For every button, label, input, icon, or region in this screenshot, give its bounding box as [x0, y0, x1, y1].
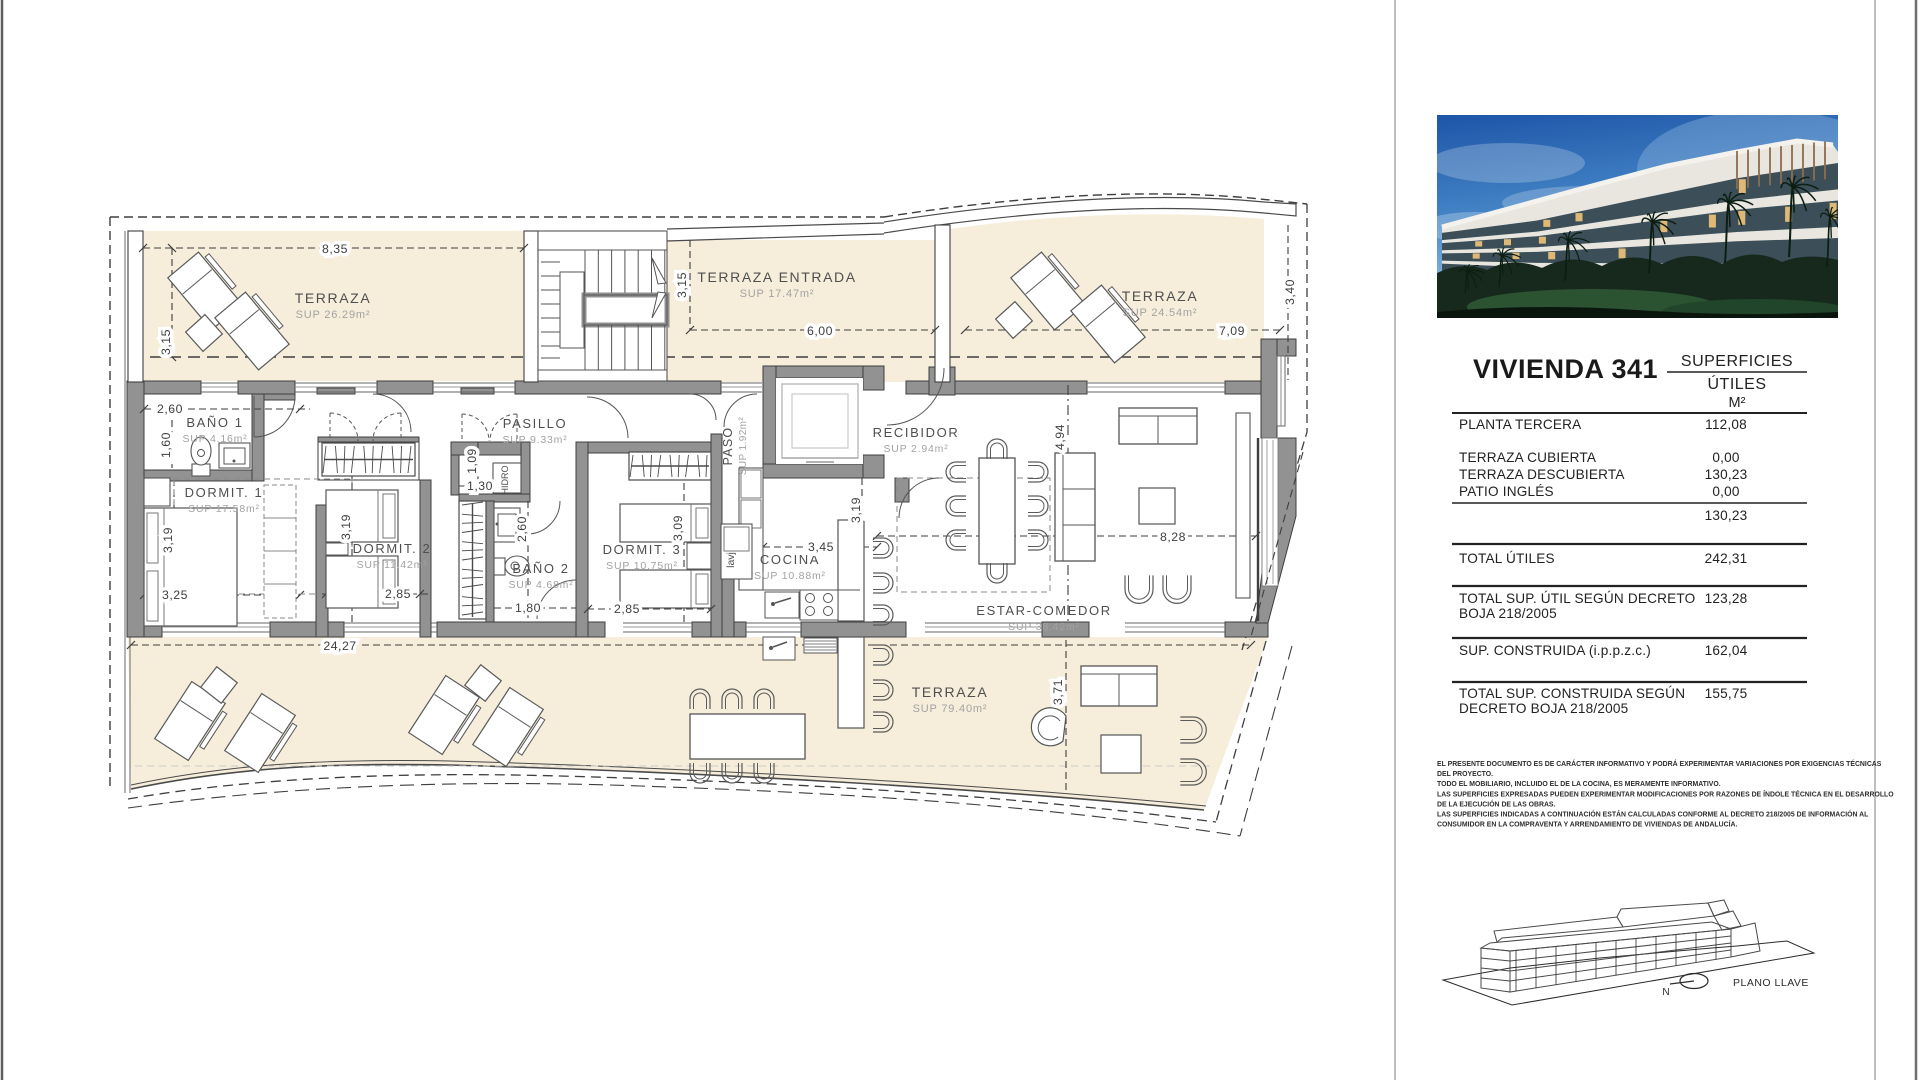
svg-text:3,19: 3,19 [339, 514, 353, 540]
svg-text:BAÑO 1: BAÑO 1 [186, 415, 243, 430]
svg-text:DECRETO BOJA 218/2005: DECRETO BOJA 218/2005 [1459, 701, 1628, 716]
svg-text:24,27: 24,27 [323, 639, 356, 653]
svg-text:DORMIT. 2: DORMIT. 2 [353, 541, 432, 556]
svg-text:162,04: 162,04 [1705, 643, 1748, 658]
svg-text:SUP 4.16m²: SUP 4.16m² [183, 433, 248, 445]
svg-text:8,35: 8,35 [322, 242, 348, 256]
svg-text:TERRAZA CUBIERTA: TERRAZA CUBIERTA [1459, 450, 1597, 465]
svg-text:SUPERFICIES: SUPERFICIES [1681, 353, 1793, 370]
svg-text:BOJA 218/2005: BOJA 218/2005 [1459, 606, 1557, 621]
svg-text:123,28: 123,28 [1705, 591, 1748, 606]
svg-text:0,00: 0,00 [1712, 484, 1739, 499]
svg-text:DORMIT. 3: DORMIT. 3 [603, 542, 682, 557]
svg-text:2,85: 2,85 [385, 587, 411, 601]
svg-text:COCINA: COCINA [760, 552, 820, 567]
svg-text:SUP 1.92m²: SUP 1.92m² [738, 417, 749, 476]
svg-text:ÚTILES: ÚTILES [1707, 374, 1766, 393]
svg-text:SUP. CONSTRUIDA (i.p.p.z.c.): SUP. CONSTRUIDA (i.p.p.z.c.) [1459, 643, 1651, 658]
svg-text:PASO: PASO [721, 427, 735, 466]
svg-text:SUP 17.47m²: SUP 17.47m² [740, 288, 815, 300]
svg-text:2,60: 2,60 [515, 516, 529, 542]
svg-text:1,80: 1,80 [515, 601, 541, 615]
svg-text:3,09: 3,09 [671, 515, 685, 541]
svg-text:SUP 10.75m²: SUP 10.75m² [606, 560, 678, 572]
svg-text:SUP 79.40m²: SUP 79.40m² [913, 703, 988, 715]
svg-text:7,09: 7,09 [1219, 324, 1245, 338]
svg-text:LAS SUPERFICIES EXPRESADAS PUE: LAS SUPERFICIES EXPRESADAS PUEDEN EXPERI… [1437, 789, 1894, 798]
svg-text:PLANTA TERCERA: PLANTA TERCERA [1459, 417, 1582, 432]
svg-text:SUP 24.54m²: SUP 24.54m² [1123, 307, 1198, 319]
svg-text:TOTAL ÚTILES: TOTAL ÚTILES [1459, 551, 1555, 566]
svg-text:ESTAR-COMEDOR: ESTAR-COMEDOR [976, 603, 1111, 618]
svg-text:TERRAZA: TERRAZA [912, 684, 989, 700]
svg-text:3,19: 3,19 [161, 527, 175, 553]
svg-text:HIDRO: HIDRO [500, 466, 510, 495]
svg-text:SUP 38.42m²: SUP 38.42m² [1008, 621, 1080, 633]
svg-text:CONSUMIDOR EN LA COMPRAVENTA Y: CONSUMIDOR EN LA COMPRAVENTA Y ARRENDAMI… [1437, 820, 1737, 829]
svg-text:2,60: 2,60 [157, 402, 183, 416]
svg-text:TOTAL SUP. CONSTRUIDA SEGÚN: TOTAL SUP. CONSTRUIDA SEGÚN [1459, 686, 1685, 701]
svg-text:4,94: 4,94 [1053, 424, 1067, 450]
svg-text:3,40: 3,40 [1283, 279, 1297, 305]
svg-text:2,85: 2,85 [614, 602, 640, 616]
svg-text:PLANO LLAVE: PLANO LLAVE [1733, 977, 1809, 989]
svg-text:3,25: 3,25 [162, 588, 188, 602]
svg-text:TERRAZA DESCUBIERTA: TERRAZA DESCUBIERTA [1459, 467, 1625, 482]
svg-text:SUP 4.68m²: SUP 4.68m² [509, 579, 574, 591]
svg-text:VIVIENDA 341: VIVIENDA 341 [1473, 354, 1658, 384]
svg-text:DE LA EJECUCIÓN DE LAS OBRAS.: DE LA EJECUCIÓN DE LAS OBRAS. [1437, 799, 1556, 808]
svg-text:130,23: 130,23 [1705, 508, 1748, 523]
svg-text:DEL PROYECTO.: DEL PROYECTO. [1437, 771, 1493, 778]
svg-text:3,19: 3,19 [849, 497, 863, 523]
svg-text:0,00: 0,00 [1712, 450, 1739, 465]
svg-text:PATIO INGLÉS: PATIO INGLÉS [1459, 484, 1554, 499]
svg-text:DORMIT. 1: DORMIT. 1 [185, 485, 264, 500]
svg-text:LAS SUPERFICIES INDICADAS A CO: LAS SUPERFICIES INDICADAS A CONTINUACIÓN… [1437, 810, 1868, 819]
svg-text:TODO EL MOBILIARIO, INCLUIDO E: TODO EL MOBILIARIO, INCLUIDO EL DE LA CO… [1437, 781, 1721, 788]
svg-text:112,08: 112,08 [1705, 417, 1747, 432]
svg-text:SUP 10.88m²: SUP 10.88m² [754, 570, 826, 582]
svg-text:3,45: 3,45 [808, 540, 834, 554]
svg-text:1,60: 1,60 [159, 432, 173, 458]
svg-text:TERRAZA ENTRADA: TERRAZA ENTRADA [697, 269, 856, 285]
svg-text:6,00: 6,00 [807, 324, 833, 338]
svg-text:242,31: 242,31 [1705, 551, 1748, 566]
svg-text:130,23: 130,23 [1705, 467, 1748, 482]
svg-text:1,09: 1,09 [465, 448, 479, 473]
svg-text:PASILLO: PASILLO [503, 416, 567, 431]
svg-text:1,30: 1,30 [467, 479, 493, 493]
svg-text:M²: M² [1729, 395, 1746, 411]
svg-text:SUP 2.94m²: SUP 2.94m² [884, 443, 949, 455]
svg-text:SUP 17.58m²: SUP 17.58m² [188, 503, 260, 515]
svg-text:TERRAZA: TERRAZA [295, 290, 372, 306]
svg-text:TERRAZA: TERRAZA [1122, 288, 1199, 304]
svg-text:EL PRESENTE DOCUMENTO ES DE CA: EL PRESENTE DOCUMENTO ES DE CARÁCTER INF… [1437, 759, 1882, 768]
svg-text:8,28: 8,28 [1160, 530, 1186, 544]
svg-text:SUP 9.33m²: SUP 9.33m² [503, 434, 568, 446]
svg-text:lavj: lavj [725, 552, 737, 568]
svg-text:155,75: 155,75 [1705, 686, 1748, 701]
svg-text:TOTAL SUP. ÚTIL SEGÚN DECRETO: TOTAL SUP. ÚTIL SEGÚN DECRETO [1459, 591, 1695, 606]
svg-text:N: N [1662, 987, 1669, 998]
svg-text:BAÑO 2: BAÑO 2 [512, 561, 569, 576]
svg-text:3,15: 3,15 [159, 329, 173, 355]
svg-text:RECIBIDOR: RECIBIDOR [873, 425, 960, 440]
svg-text:3,71: 3,71 [1051, 679, 1065, 705]
svg-text:3,15: 3,15 [675, 272, 689, 298]
svg-text:SUP 11.42m²: SUP 11.42m² [357, 559, 428, 571]
svg-text:SUP 26.29m²: SUP 26.29m² [296, 309, 371, 321]
